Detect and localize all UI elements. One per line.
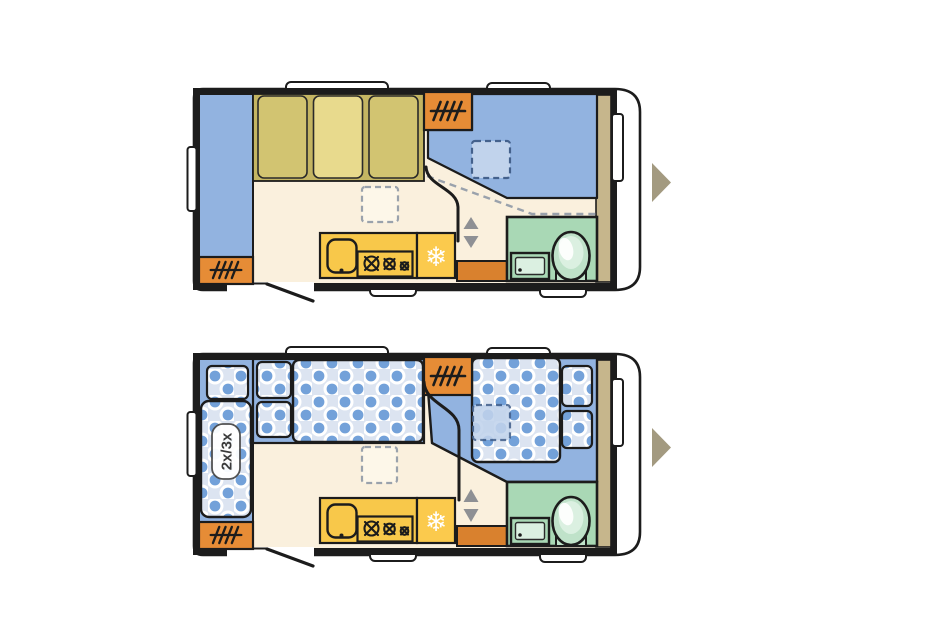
bathroom-block xyxy=(507,482,597,546)
rear-bed-pillow xyxy=(562,366,592,406)
mid-bed-mattress xyxy=(293,360,423,442)
night-floorplan: 2x/3x xyxy=(188,347,672,566)
wardrobe-door xyxy=(369,96,418,178)
bunk-pillow xyxy=(207,366,248,399)
roof-vent-rear xyxy=(473,405,510,440)
roof-vent-rear xyxy=(472,141,510,178)
roof-vent-living xyxy=(362,187,398,222)
caravan-floorplan-sheet: ❄ xyxy=(0,0,951,630)
wardrobe-door xyxy=(314,96,363,178)
wardrobe-block xyxy=(253,94,424,181)
wardrobe-door xyxy=(258,96,307,178)
bathroom-block xyxy=(507,217,597,281)
rear-bed-pillow xyxy=(562,411,592,448)
mid-bed-pillow xyxy=(257,402,291,437)
bunk-count-label: 2x/3x xyxy=(219,432,236,470)
mid-bed-pillow xyxy=(257,362,291,398)
day-floorplan xyxy=(188,82,672,301)
roof-vent-living xyxy=(362,447,397,483)
front-bench-seat xyxy=(199,94,253,257)
